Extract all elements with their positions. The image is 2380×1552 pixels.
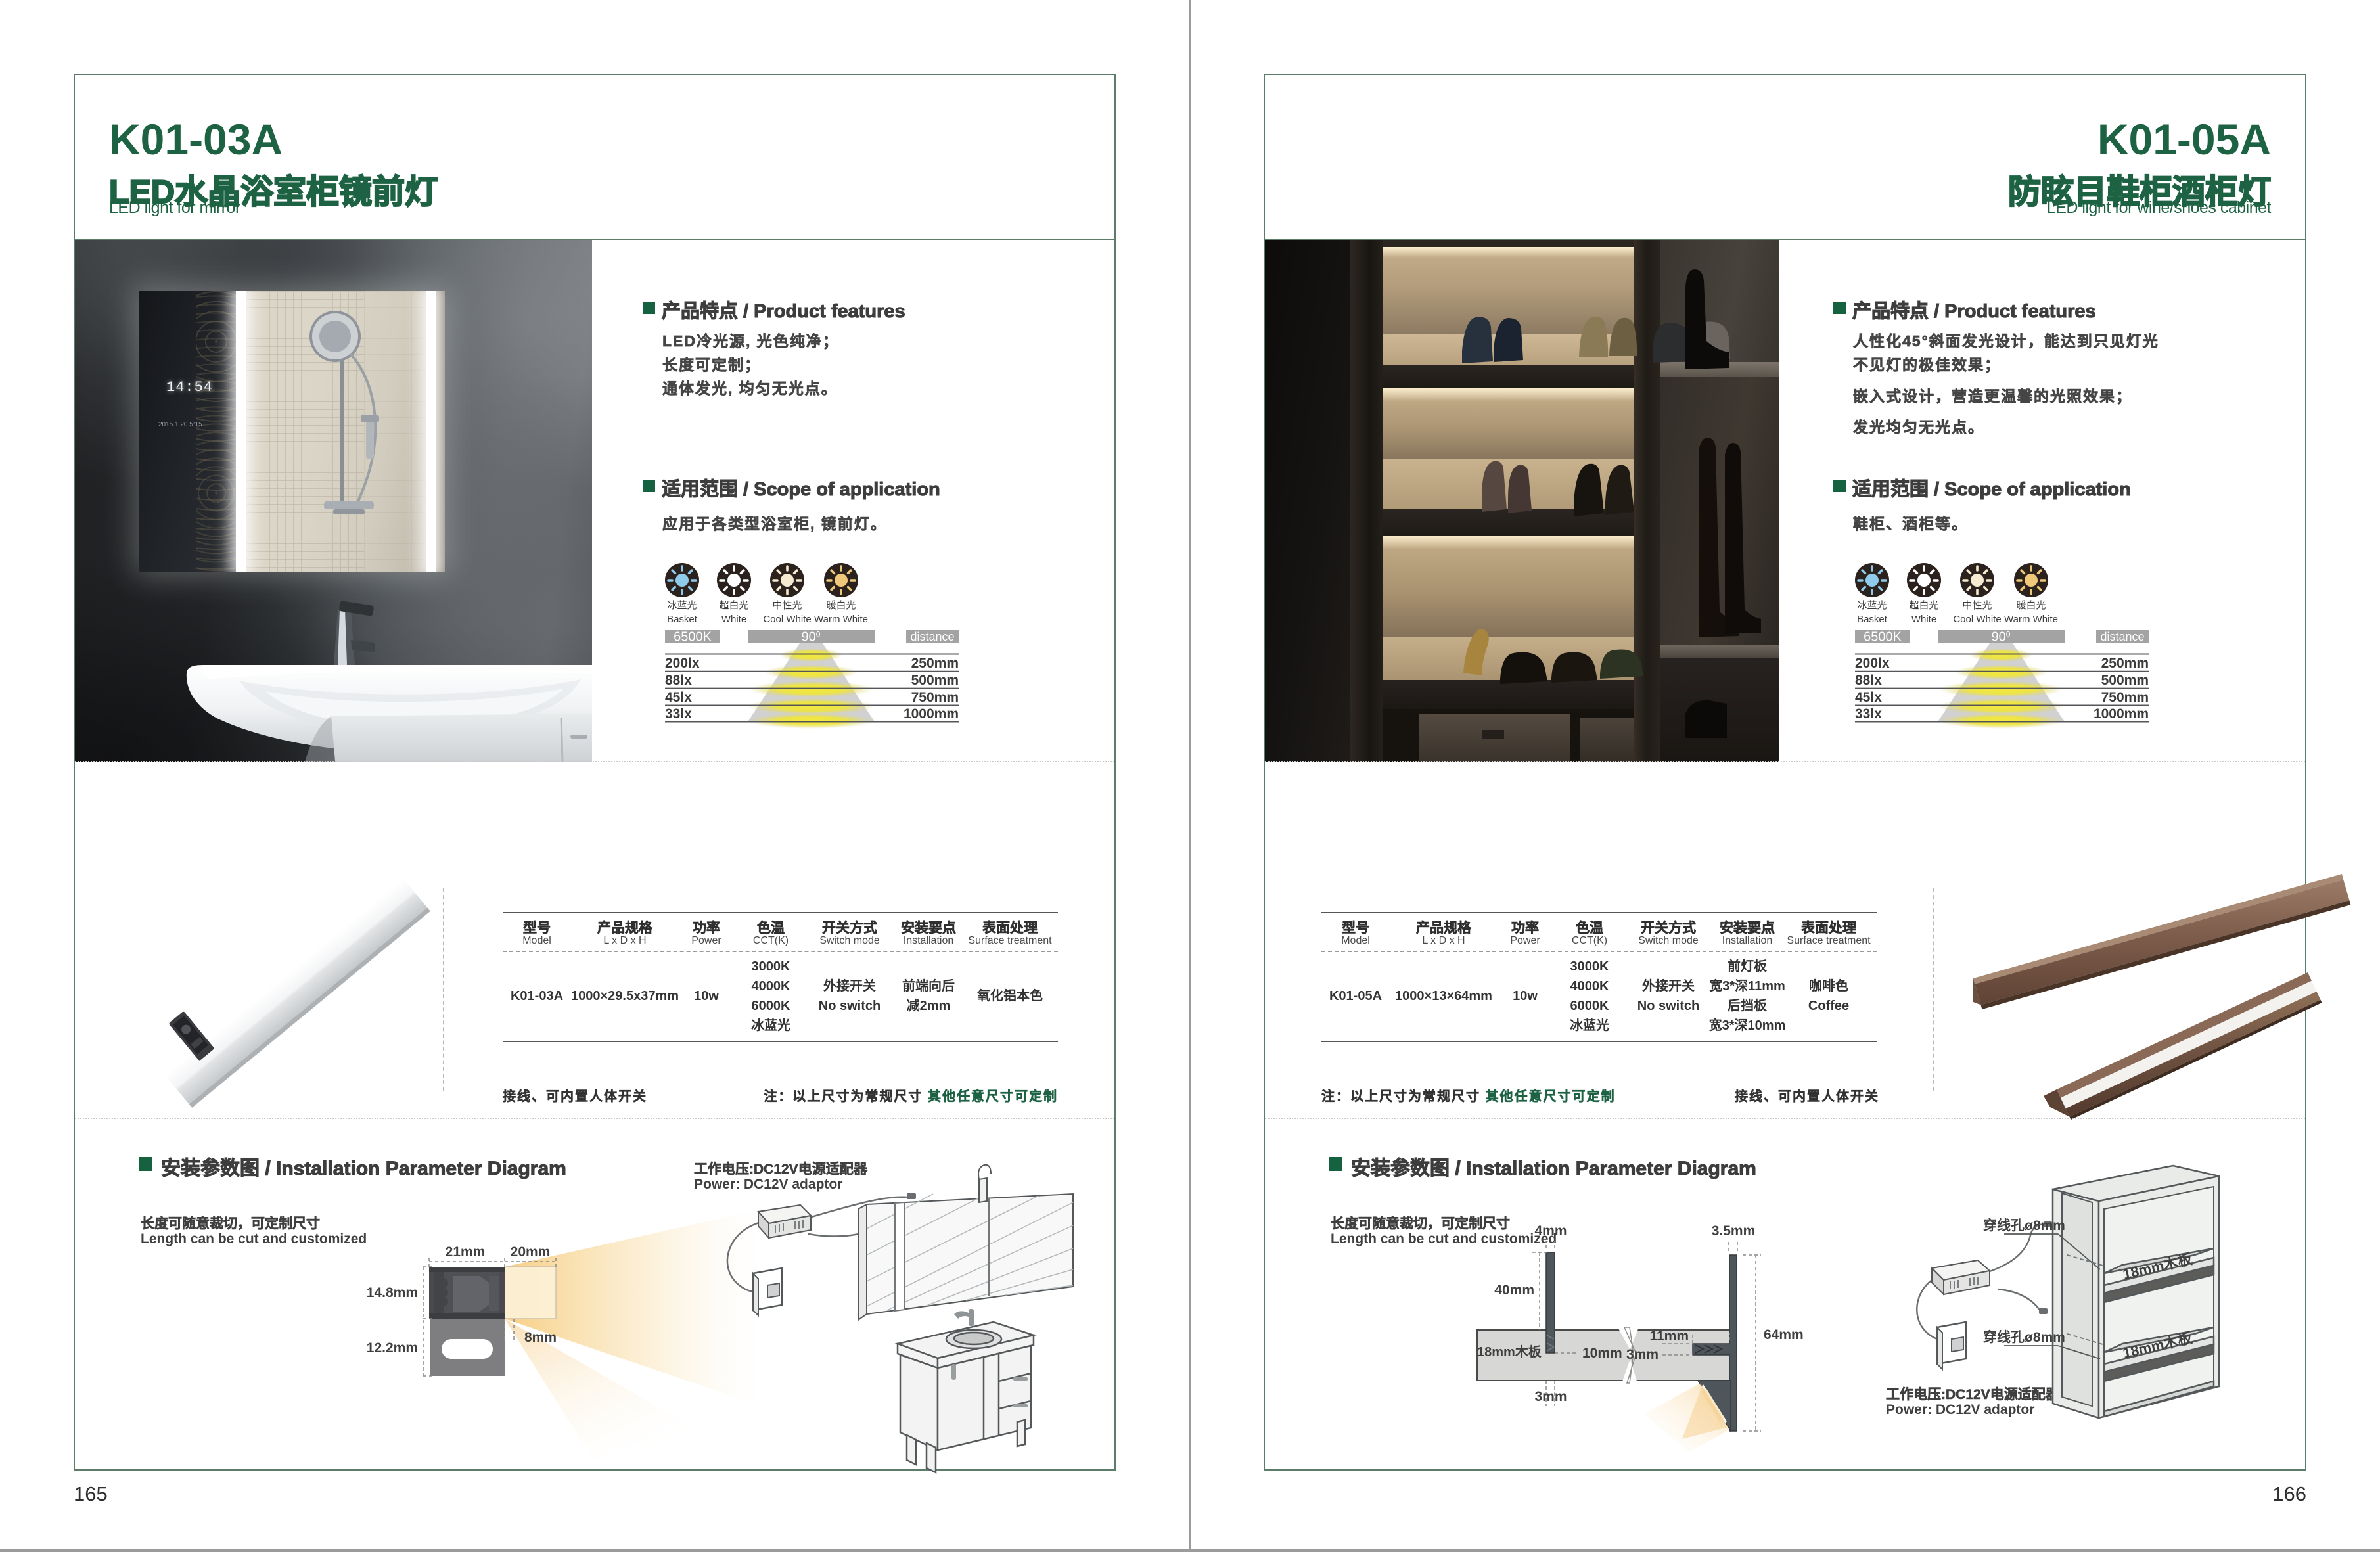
svg-text:250mm: 250mm (911, 656, 959, 671)
svg-text:250mm: 250mm (2101, 656, 2149, 671)
svg-text:3.5mm: 3.5mm (1712, 1223, 1756, 1239)
svg-text:冰蓝光: 冰蓝光 (1857, 600, 1887, 611)
svg-text:6500K: 6500K (674, 630, 712, 645)
svg-text:500mm: 500mm (911, 673, 959, 688)
svg-text:Warm White: Warm White (2004, 614, 2058, 625)
svg-text:500mm: 500mm (2101, 673, 2149, 688)
svg-text:200lx: 200lx (665, 656, 700, 671)
svg-text:超白光: 超白光 (719, 600, 748, 611)
svg-text:Cool White: Cool White (763, 614, 811, 625)
svg-text:3mm: 3mm (1626, 1347, 1659, 1362)
svg-text:暖白光: 暖白光 (2016, 600, 2046, 611)
svg-text:distance: distance (910, 630, 954, 643)
svg-text:穿线孔ø8mm: 穿线孔ø8mm (1983, 1218, 2065, 1233)
svg-text:1000mm: 1000mm (904, 706, 959, 721)
svg-text:8mm: 8mm (524, 1330, 557, 1345)
svg-text:200lx: 200lx (1855, 656, 1890, 671)
svg-text:18mm木板: 18mm木板 (1477, 1344, 1542, 1359)
svg-text:12.2mm: 12.2mm (367, 1340, 418, 1356)
svg-text:45lx: 45lx (665, 690, 692, 705)
svg-text:Basket: Basket (667, 614, 698, 625)
svg-text:Basket: Basket (1857, 614, 1888, 625)
svg-text:21mm: 21mm (446, 1244, 486, 1260)
svg-text:中性光: 中性光 (1962, 600, 1992, 611)
svg-text:10mm: 10mm (1582, 1346, 1622, 1361)
svg-text:1000mm: 1000mm (2094, 706, 2149, 721)
svg-text:穿线孔ø8mm: 穿线孔ø8mm (1983, 1329, 2065, 1345)
svg-text:11mm: 11mm (1649, 1329, 1689, 1344)
svg-text:88lx: 88lx (1855, 673, 1882, 688)
svg-text:3mm: 3mm (1534, 1389, 1567, 1404)
svg-text:750mm: 750mm (911, 690, 959, 705)
svg-text:14.8mm: 14.8mm (367, 1285, 418, 1300)
svg-text:冰蓝光: 冰蓝光 (667, 600, 697, 611)
svg-text:33lx: 33lx (665, 706, 692, 721)
svg-text:中性光: 中性光 (772, 600, 802, 611)
svg-text:40mm: 40mm (1494, 1283, 1534, 1298)
svg-text:45lx: 45lx (1855, 690, 1882, 705)
svg-text:White: White (1911, 614, 1936, 625)
svg-text:超白光: 超白光 (1909, 600, 1938, 611)
svg-text:Cool White: Cool White (1953, 614, 2001, 625)
svg-text:33lx: 33lx (1855, 706, 1882, 721)
svg-text:88lx: 88lx (665, 673, 692, 688)
svg-text:暖白光: 暖白光 (826, 600, 856, 611)
svg-text:Warm White: Warm White (814, 614, 868, 625)
svg-text:distance: distance (2100, 630, 2144, 643)
svg-text:20mm: 20mm (511, 1244, 551, 1260)
svg-text:6500K: 6500K (1864, 630, 1902, 645)
svg-text:4mm: 4mm (1534, 1223, 1567, 1239)
svg-text:White: White (721, 614, 746, 625)
svg-text:750mm: 750mm (2101, 690, 2149, 705)
svg-text:64mm: 64mm (1764, 1327, 1804, 1342)
